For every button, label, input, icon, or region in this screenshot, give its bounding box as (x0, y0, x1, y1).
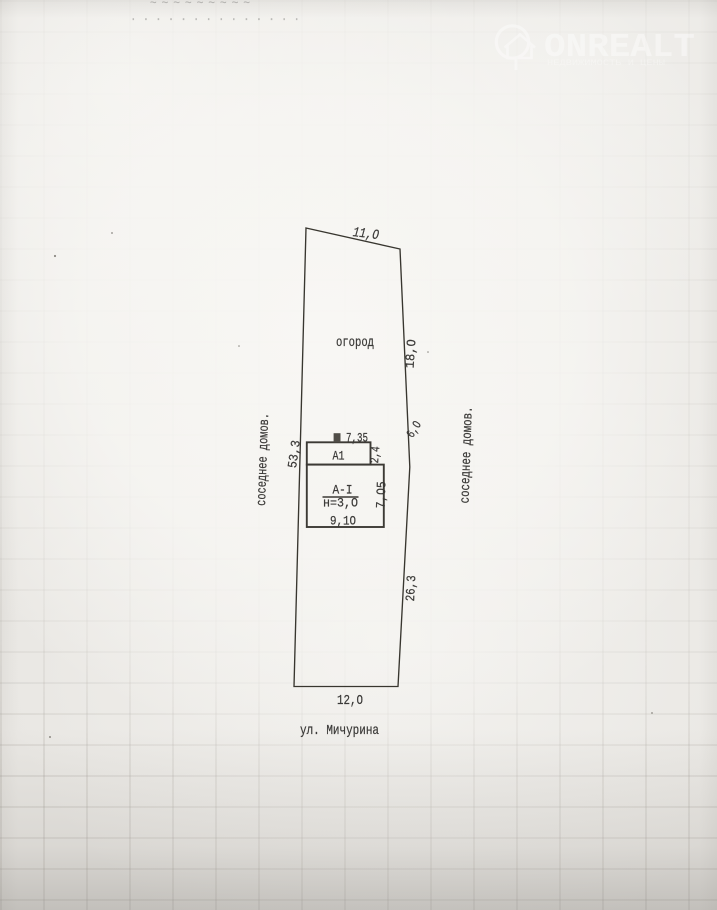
svg-text:2,4: 2,4 (368, 446, 383, 464)
svg-text:огород: огород (336, 335, 374, 351)
svg-text:А1: А1 (333, 449, 345, 464)
svg-text:26,3: 26,3 (403, 575, 419, 602)
svg-text:..............: .............. (130, 12, 300, 24)
svg-text:соседнее домов.: соседнее домов. (459, 406, 477, 503)
svg-text:ул. Мичурина: ул. Мичурина (300, 723, 379, 739)
svg-text:18,О: 18,О (403, 339, 420, 369)
svg-text:н=3,О: н=3,О (323, 496, 358, 511)
svg-text:11,О: 11,О (352, 225, 380, 244)
svg-text:7,35: 7,35 (346, 431, 368, 446)
svg-text:12,О: 12,О (337, 693, 363, 709)
svg-text:7,О5: 7,О5 (374, 481, 390, 509)
svg-text:~~~~~~~~~: ~~~~~~~~~ (150, 0, 250, 10)
svg-text:9,1О: 9,1О (330, 514, 356, 529)
svg-text:53,3: 53,3 (285, 439, 304, 469)
svg-text:соседнее домов.: соседнее домов. (255, 413, 273, 506)
svg-text:НЕДВИЖИМОСТЬ И ЦЕНЫ: НЕДВИЖИМОСТЬ И ЦЕНЫ (547, 58, 665, 68)
